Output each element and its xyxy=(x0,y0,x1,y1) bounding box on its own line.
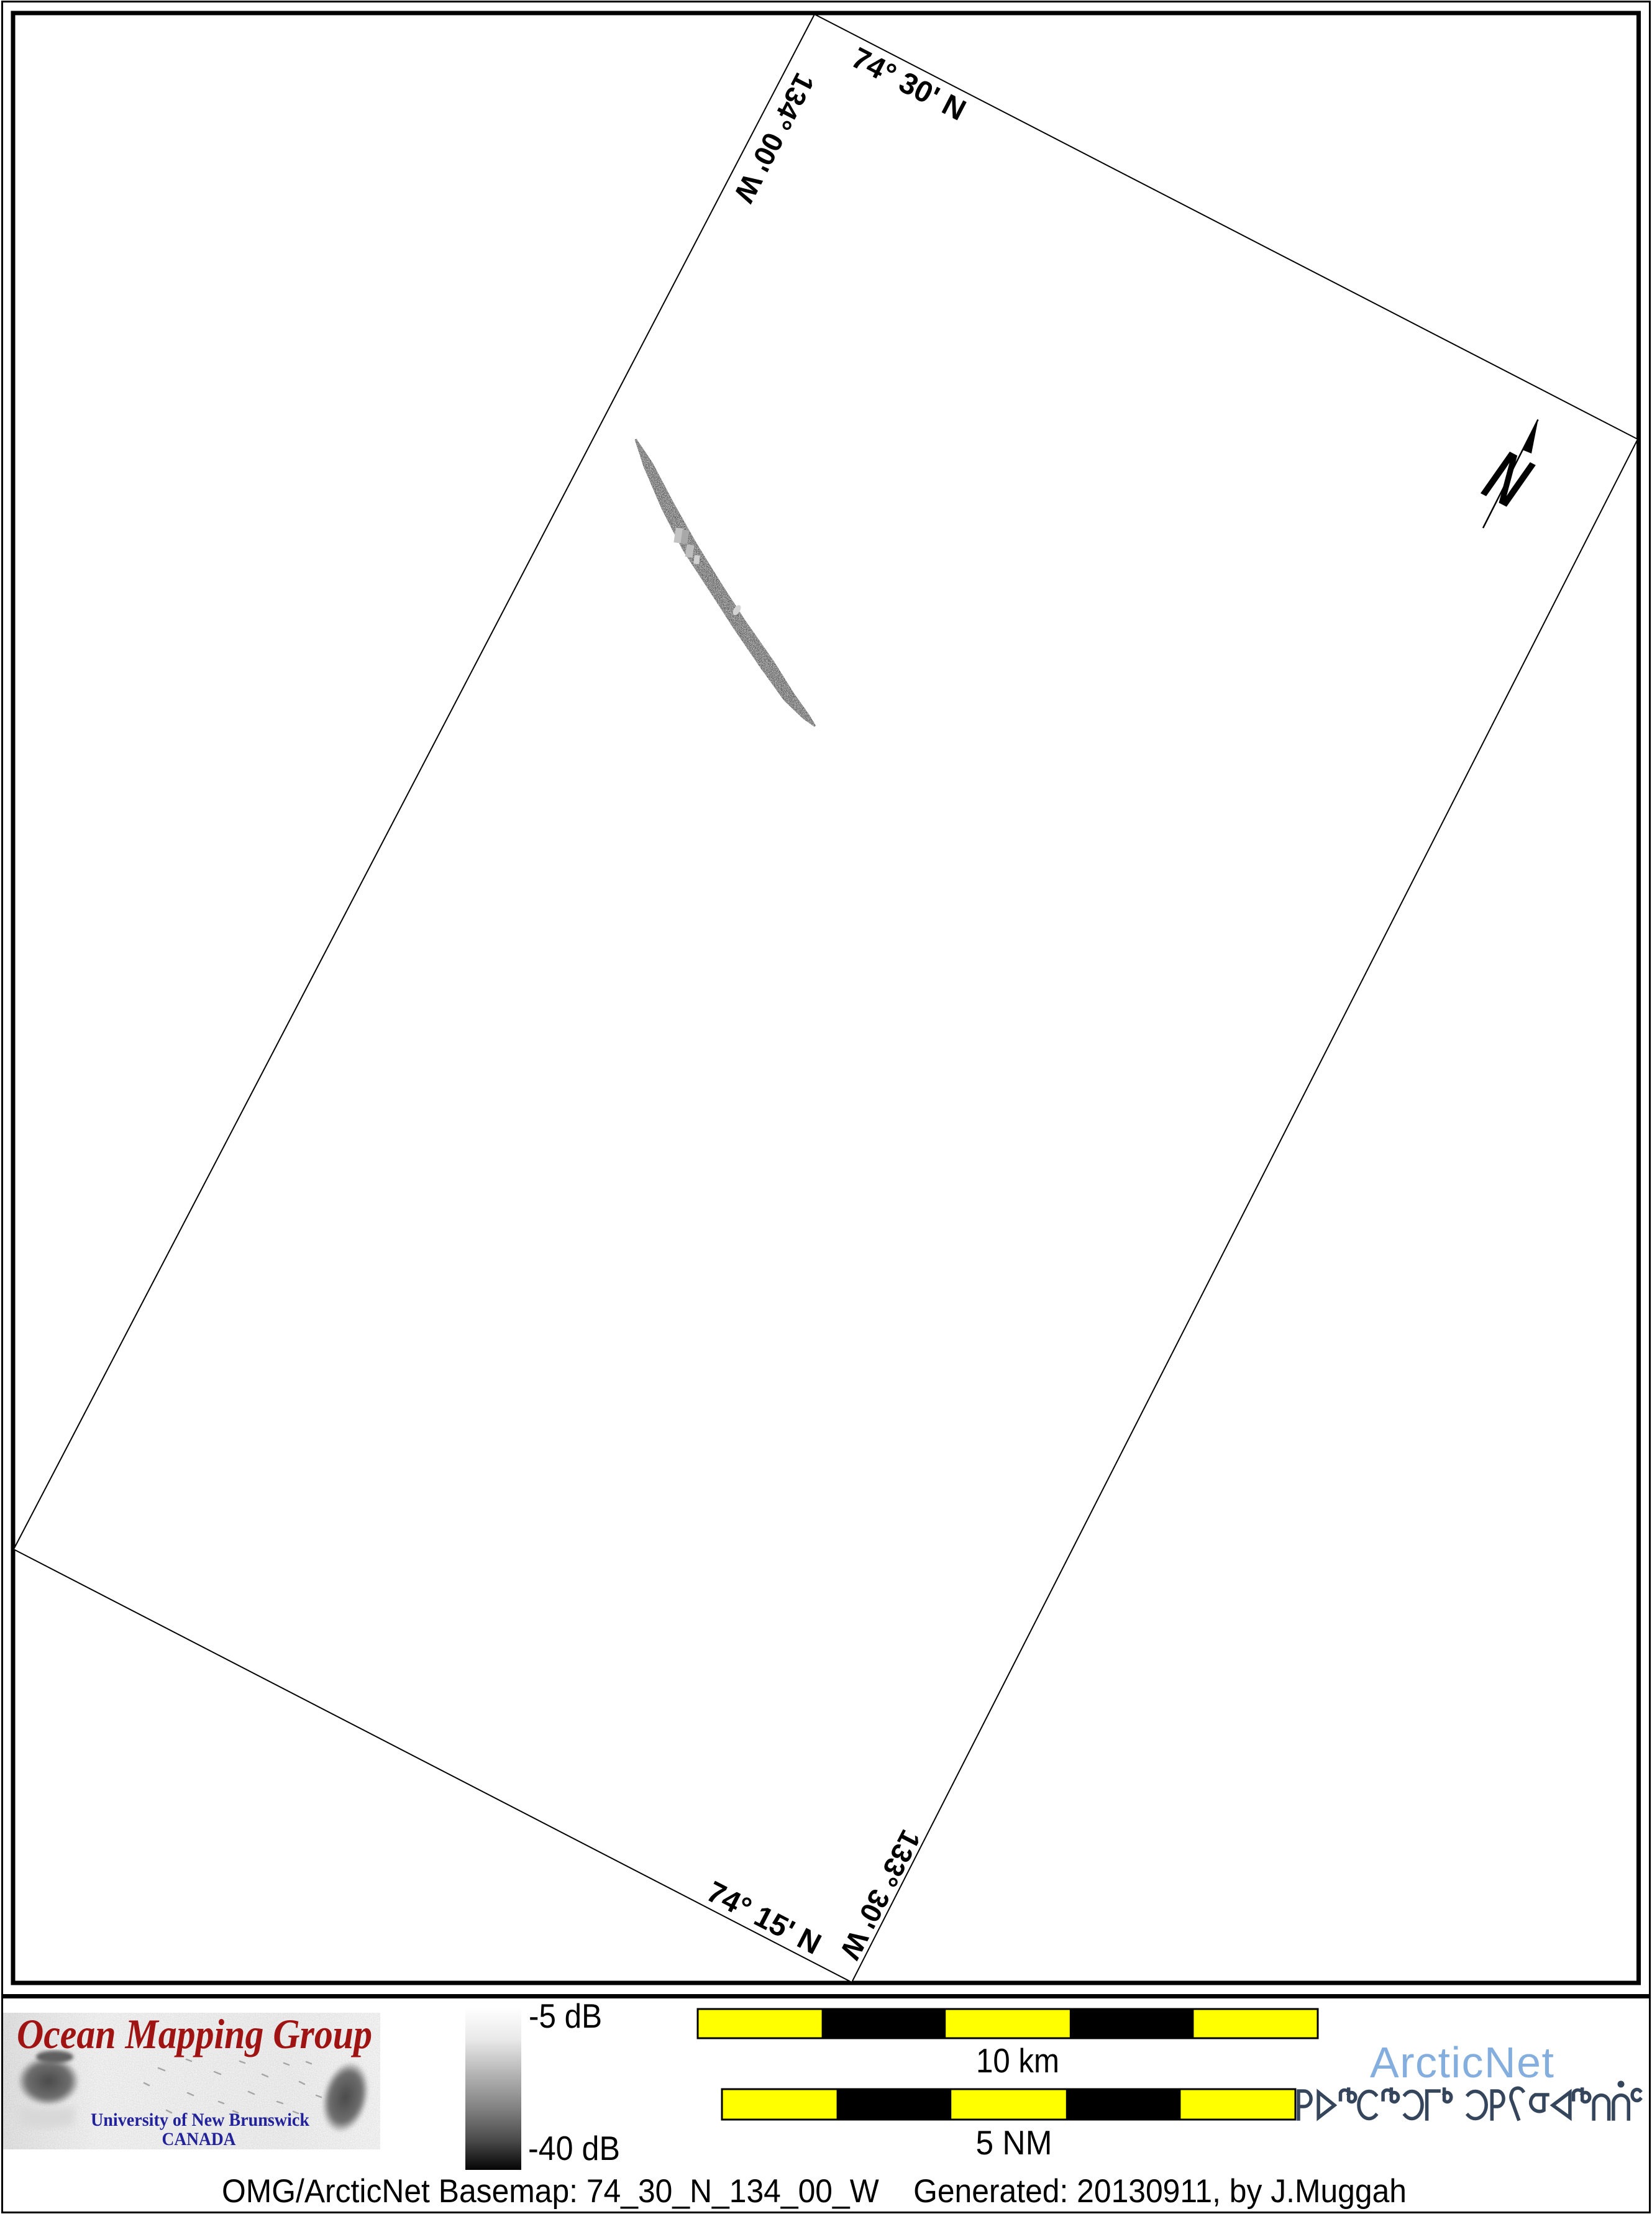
svg-text:ArcticNet: ArcticNet xyxy=(1370,2038,1554,2087)
svg-text:5 NM: 5 NM xyxy=(976,2123,1052,2162)
svg-text:Ocean Mapping Group: Ocean Mapping Group xyxy=(17,2010,372,2057)
svg-text:University of New Brunswick: University of New Brunswick xyxy=(91,2110,309,2130)
svg-text:-40 dB: -40 dB xyxy=(528,2129,620,2167)
svg-text:10 km: 10 km xyxy=(976,2041,1059,2080)
svg-text:CANADA: CANADA xyxy=(162,2129,236,2149)
svg-text:-5 dB: -5 dB xyxy=(529,1997,602,2035)
svg-text:OMG/ArcticNet Basemap: 74_30_N: OMG/ArcticNet Basemap: 74_30_N_134_00_W … xyxy=(222,2173,1407,2210)
